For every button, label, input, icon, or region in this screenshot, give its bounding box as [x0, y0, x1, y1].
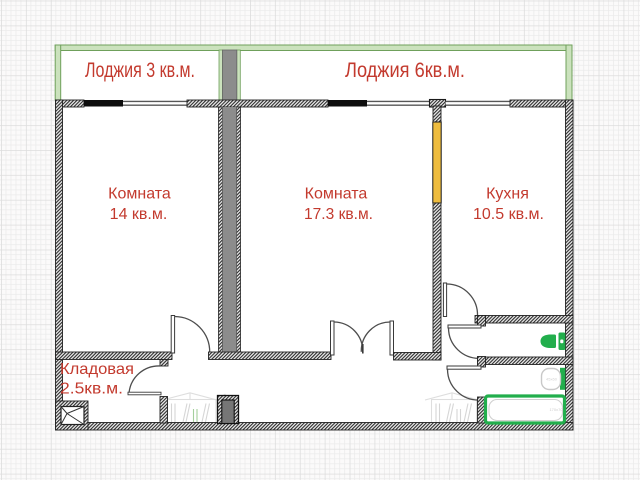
svg-text:Лоджия 6кв.м.: Лоджия 6кв.м.: [345, 59, 465, 82]
svg-text:Кладовая: Кладовая: [60, 361, 134, 378]
svg-text:Лоджия 3 кв.м.: Лоджия 3 кв.м.: [85, 59, 195, 82]
svg-text:Комната: Комната: [305, 186, 368, 203]
svg-text:2.5кв.м.: 2.5кв.м.: [60, 381, 123, 398]
svg-text:170x70: 170x70: [549, 407, 563, 412]
svg-text:45x60: 45x60: [546, 377, 558, 382]
svg-text:17.3 кв.м.: 17.3 кв.м.: [304, 206, 373, 223]
svg-text:14 кв.м.: 14 кв.м.: [110, 206, 168, 223]
svg-text:Комната: Комната: [108, 186, 171, 203]
svg-text:10.5 кв.м.: 10.5 кв.м.: [473, 206, 544, 223]
svg-text:Кухня: Кухня: [486, 186, 529, 203]
